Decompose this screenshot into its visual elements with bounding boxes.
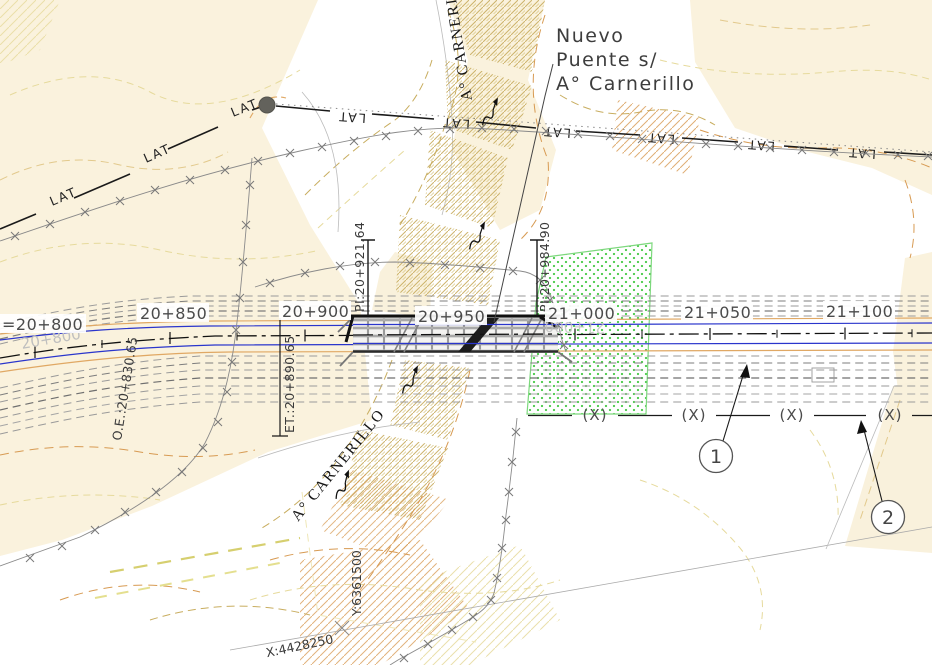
callout-1-number: 1 [710,446,722,468]
x-line-label: (X) [780,406,805,424]
coordinate-y-label: Y:6361500 [349,550,364,617]
station-label-20850: 20+850 [140,304,207,323]
et-station-label: ET.:20+890.65 [282,335,297,433]
title-line-2: Puente s/ [556,49,658,71]
cad-plan-viewport: LAT LAT LAT LAT LAT LAT LAT LAT LAT [0,0,932,665]
x-line-label: (X) [682,406,707,424]
utility-pole-marker [259,97,275,113]
station-label-20800: =20+800 [2,315,83,334]
cad-plan-drawing: LAT LAT LAT LAT LAT LAT LAT LAT LAT [0,0,932,665]
pi-station-label-2: PI:20+984.90 [537,222,552,312]
station-label-21100: 21+100 [826,302,893,321]
station-label-21050: 21+050 [684,303,751,322]
pi-station-label-1: PI:20+921.64 [352,222,367,312]
x-line-label: (X) [583,406,608,424]
title-line-3: A° Carnerillo [556,73,695,95]
lat-label-flipped: LAT [441,115,470,132]
lat-label-flipped: LAT [337,109,366,126]
station-label-20950: 20+950 [418,307,485,326]
title-line-1: Nuevo [556,25,624,47]
callout-2-number: 2 [882,507,894,529]
x-line-label: (X) [878,406,903,424]
lat-label-flipped: LAT [746,137,775,154]
station-label-20900: 20+900 [282,302,349,321]
station-label-21000: 21+000 [548,304,615,323]
